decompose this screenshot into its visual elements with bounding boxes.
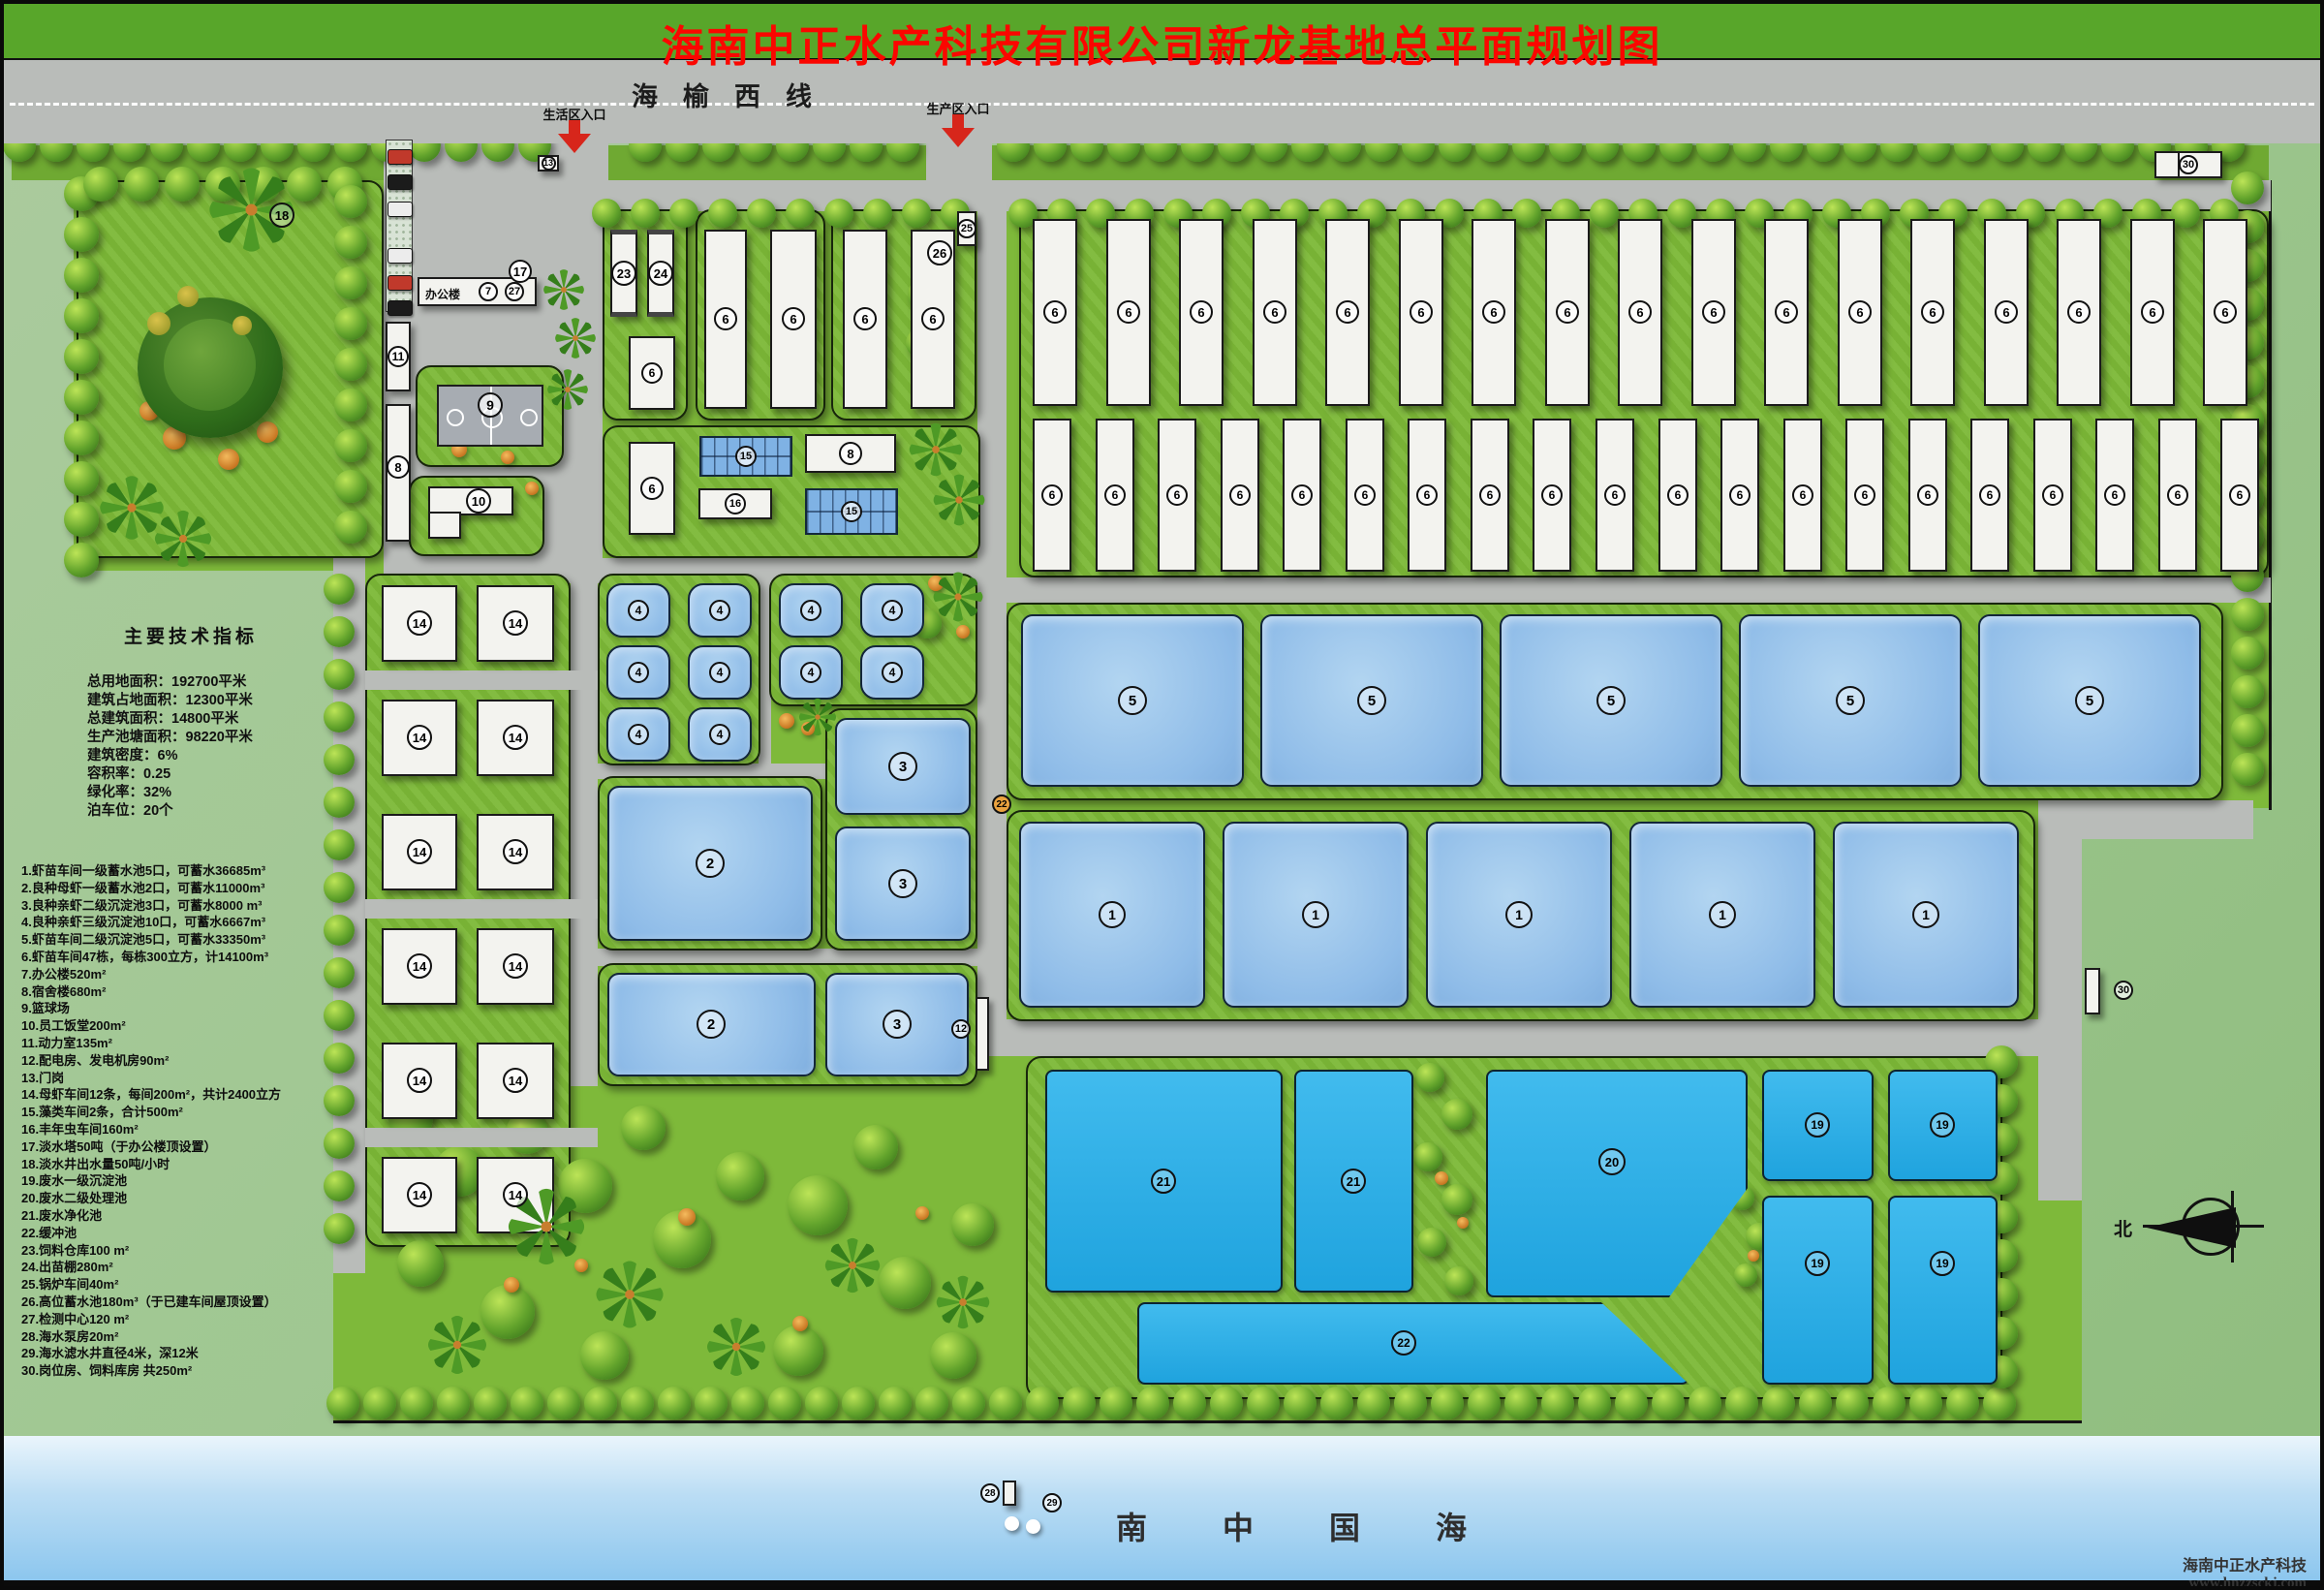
title-banner: 海南中正水产科技有限公司新龙基地总平面规划图 bbox=[4, 4, 2320, 58]
site-zone-mid bbox=[333, 571, 2271, 808]
legend-item: 27.检测中心120 m² bbox=[21, 1311, 281, 1328]
label-n4: 4 bbox=[709, 662, 730, 683]
tree-icon bbox=[1357, 1387, 1390, 1419]
tree-icon bbox=[2231, 171, 2264, 204]
office-building: 办公楼 bbox=[418, 277, 537, 306]
label-n1: 1 bbox=[1099, 901, 1126, 928]
tree-icon bbox=[1415, 1063, 1444, 1092]
tree-icon bbox=[324, 1043, 355, 1074]
label-n6: 6 bbox=[1291, 484, 1313, 506]
workshop-6 bbox=[1283, 419, 1321, 572]
label-n6: 6 bbox=[1854, 484, 1875, 506]
tree-icon bbox=[1985, 1278, 2018, 1311]
label-n4: 4 bbox=[628, 724, 649, 745]
mother-shrimp-workshop-14 bbox=[382, 814, 457, 890]
pond-1 bbox=[1019, 822, 1205, 1008]
tree-icon bbox=[747, 199, 776, 228]
tree-icon bbox=[324, 574, 355, 605]
tree-icon bbox=[334, 389, 367, 421]
tree-icon bbox=[731, 1387, 764, 1419]
legend-item: 4.良种亲虾三级沉淀池10口，可蓄水6667m³ bbox=[21, 914, 281, 931]
tree-icon bbox=[621, 1106, 666, 1150]
tree-icon bbox=[824, 199, 853, 228]
label-n6: 6 bbox=[1190, 300, 1213, 324]
label-n6: 6 bbox=[1041, 484, 1063, 506]
workshop-6 bbox=[1908, 419, 1947, 572]
pond-5 bbox=[1739, 614, 1962, 787]
tree-icon bbox=[930, 1332, 976, 1379]
label-n6: 6 bbox=[1166, 484, 1188, 506]
flower-bush-icon bbox=[235, 390, 261, 416]
road-below-pond1 bbox=[977, 1019, 2082, 1056]
mother-shrimp-workshop-14 bbox=[477, 1157, 554, 1233]
workshop-6 bbox=[2203, 219, 2247, 406]
flower-bush-icon bbox=[717, 260, 732, 275]
workshop-6 bbox=[1158, 419, 1196, 572]
workshop-6 bbox=[1533, 419, 1571, 572]
road-above-pond5 bbox=[1007, 577, 2271, 603]
workshop-6 bbox=[1783, 419, 1822, 572]
pond-4 bbox=[606, 645, 670, 700]
tree-icon bbox=[83, 167, 118, 202]
workshop-6 bbox=[1691, 219, 1736, 406]
tree-icon bbox=[558, 1159, 612, 1213]
mother-shrimp-workshop-14 bbox=[382, 928, 457, 1005]
roadside-green-strip bbox=[12, 145, 2269, 180]
tree-icon bbox=[786, 199, 815, 228]
tree-icon bbox=[1504, 1387, 1537, 1419]
pond-19 bbox=[1762, 1070, 1874, 1181]
label-n6: 6 bbox=[921, 307, 945, 330]
label-n6: 6 bbox=[1792, 484, 1813, 506]
tree-icon bbox=[506, 1111, 548, 1154]
tree-icon bbox=[205, 167, 240, 202]
label-n6: 6 bbox=[1917, 484, 1938, 506]
car-icon bbox=[387, 248, 413, 264]
label-n6: 6 bbox=[782, 307, 805, 330]
tree-icon bbox=[1320, 1387, 1353, 1419]
tree-icon bbox=[124, 167, 159, 202]
road-between-pond4-blocks bbox=[759, 574, 771, 765]
tree-icon bbox=[363, 1387, 396, 1419]
legend-item: 28.海水泵房20m² bbox=[21, 1328, 281, 1346]
tree-icon bbox=[334, 470, 367, 503]
tech-line: 泊车位：20个 bbox=[87, 802, 258, 821]
workshop-6 bbox=[1096, 419, 1134, 572]
label-n2: 2 bbox=[696, 849, 725, 878]
brine-shrimp-16 bbox=[698, 488, 772, 519]
label-n14: 14 bbox=[407, 1182, 432, 1207]
tree-icon bbox=[902, 199, 931, 228]
pond-4 bbox=[860, 583, 924, 638]
mother-shrimp-workshop-14 bbox=[382, 1157, 457, 1233]
car-icon bbox=[387, 202, 413, 217]
workshop-6 bbox=[2057, 219, 2101, 406]
compass-hline bbox=[2143, 1225, 2264, 1228]
tree-icon bbox=[1396, 199, 1425, 228]
label-n5: 5 bbox=[1836, 686, 1865, 715]
tree-icon bbox=[324, 659, 355, 690]
label-n6: 6 bbox=[1604, 484, 1626, 506]
label-n6: 6 bbox=[2141, 300, 2164, 324]
label-n6: 6 bbox=[1482, 300, 1505, 324]
boiler-room-25 bbox=[957, 211, 976, 246]
label-n6: 6 bbox=[1848, 300, 1872, 324]
site-zone-bottom bbox=[333, 808, 2082, 1423]
tree-icon bbox=[2055, 199, 2084, 228]
tree-icon bbox=[2231, 637, 2264, 670]
label-n4: 4 bbox=[628, 662, 649, 683]
pond4-block-b bbox=[769, 574, 977, 706]
tree-icon bbox=[1909, 1387, 1942, 1419]
compass-arrow-icon bbox=[2147, 1207, 2236, 1248]
tree-icon bbox=[951, 1203, 994, 1246]
tree-icon bbox=[64, 298, 99, 333]
tree-icon bbox=[1413, 1142, 1442, 1171]
tree-icon bbox=[989, 1387, 1022, 1419]
tree-icon bbox=[334, 429, 367, 462]
sea-name: 南中国海 bbox=[1116, 1504, 1542, 1548]
tree-icon bbox=[1318, 199, 1348, 228]
workshop-6 bbox=[2033, 419, 2072, 572]
tree-icon bbox=[246, 167, 281, 202]
label-n19: 19 bbox=[1805, 1251, 1830, 1276]
pond-19 bbox=[1762, 1196, 1874, 1385]
palm-tree-icon bbox=[931, 570, 985, 624]
legend-item: 26.高位蓄水池180m³（于已建车间屋顶设置） bbox=[21, 1294, 281, 1311]
label-n6: 6 bbox=[1995, 300, 2018, 324]
tech-indicators-panel: 主要技术指标 总用地面积：192700平米建筑占地面积：12300平米总建筑面积… bbox=[87, 622, 258, 821]
workshop-6 bbox=[1658, 419, 1697, 572]
legend-item: 18.淡水井出水量50吨/小时 bbox=[21, 1156, 281, 1173]
pond-4 bbox=[779, 645, 843, 700]
pond-1 bbox=[1223, 822, 1409, 1008]
tree-icon bbox=[2093, 199, 2123, 228]
tree-icon bbox=[1247, 1387, 1280, 1419]
tree-icon bbox=[592, 199, 621, 228]
pond-1 bbox=[1629, 822, 1815, 1008]
tree-icon bbox=[1745, 199, 1774, 228]
central-vertical-road bbox=[977, 211, 1007, 1056]
algae-pond-15 bbox=[699, 436, 792, 477]
tree-icon bbox=[64, 380, 99, 415]
tree-icon bbox=[952, 1387, 985, 1419]
tree-icon bbox=[1026, 1387, 1059, 1419]
tree-icon bbox=[327, 167, 362, 202]
seedling-shed-24 bbox=[647, 230, 674, 317]
palm-tree-icon bbox=[931, 472, 987, 528]
gatehouse-13 bbox=[538, 155, 559, 171]
palm-tree-icon bbox=[934, 1273, 992, 1331]
legend-item: 8.宿舍楼680m² bbox=[21, 983, 281, 1001]
tree-icon bbox=[1551, 199, 1580, 228]
label-n6: 6 bbox=[1479, 484, 1501, 506]
tree-icon bbox=[1444, 1266, 1473, 1295]
workshop-6 bbox=[1910, 219, 1955, 406]
tree-icon bbox=[1746, 1223, 1773, 1250]
east-vertical-road bbox=[2038, 800, 2082, 1200]
tree-icon bbox=[1985, 1162, 2018, 1195]
tree-icon bbox=[773, 1325, 823, 1376]
label-n1: 1 bbox=[1302, 901, 1329, 928]
tree-icon bbox=[584, 1387, 617, 1419]
tree-icon bbox=[2132, 199, 2161, 228]
label-n22: 22 bbox=[992, 795, 1011, 814]
mother-shrimp-workshop-14 bbox=[477, 928, 554, 1005]
car-icon bbox=[387, 149, 413, 165]
tree-icon bbox=[434, 1146, 484, 1197]
label-n21: 21 bbox=[1151, 1169, 1176, 1194]
block-6-a bbox=[696, 209, 825, 421]
legend-item: 23.饲料仓库100 m² bbox=[21, 1242, 281, 1260]
flower-bush-icon bbox=[708, 238, 728, 258]
tree-icon bbox=[1822, 199, 1851, 228]
tree-icon bbox=[324, 616, 355, 647]
tree-icon bbox=[1431, 1387, 1464, 1419]
label-n6: 6 bbox=[641, 362, 663, 384]
label-n6: 6 bbox=[714, 307, 737, 330]
tree-icon bbox=[2231, 249, 2264, 282]
site-boundary-right bbox=[2269, 180, 2272, 810]
label-n6: 6 bbox=[1775, 300, 1798, 324]
tree-icon bbox=[334, 348, 367, 381]
tree-icon bbox=[64, 176, 99, 211]
legend-item: 30.岗位房、饲料库房 共250m² bbox=[21, 1362, 281, 1380]
palm-tree-icon bbox=[205, 164, 297, 256]
tree-icon bbox=[1125, 199, 1154, 228]
tree-icon bbox=[621, 1387, 654, 1419]
tree-icon bbox=[2171, 199, 2200, 228]
label-n4: 4 bbox=[800, 662, 821, 683]
flower-bush-icon bbox=[792, 1316, 808, 1331]
tree-icon bbox=[324, 915, 355, 946]
bottom-pond-row-block bbox=[598, 963, 977, 1086]
life-entrance-arrowhead bbox=[558, 134, 591, 170]
label-n6: 6 bbox=[2167, 484, 2188, 506]
label-n6: 6 bbox=[1921, 300, 1944, 324]
tree-icon bbox=[326, 1387, 359, 1419]
tree-icon bbox=[1284, 1387, 1317, 1419]
big-tree-icon bbox=[138, 297, 283, 438]
canteen-10 bbox=[428, 486, 513, 515]
flower-bush-icon bbox=[924, 312, 940, 327]
label-n14: 14 bbox=[407, 953, 432, 979]
pond-20 bbox=[1486, 1070, 1748, 1297]
tree-icon bbox=[2231, 675, 2264, 708]
tree-icon bbox=[1689, 1387, 1721, 1419]
stub-road bbox=[365, 899, 598, 919]
tech-line: 生产池塘面积：98220平米 bbox=[87, 729, 258, 747]
tree-icon bbox=[2231, 404, 2264, 437]
tree-icon bbox=[716, 1152, 764, 1200]
flower-bush-icon bbox=[451, 442, 467, 457]
tree-icon bbox=[334, 226, 367, 259]
tree-icon bbox=[708, 199, 737, 228]
tree-icon bbox=[1441, 1099, 1472, 1130]
workshop-6 bbox=[1033, 219, 1077, 406]
workshop-6 bbox=[1472, 219, 1516, 406]
legend-list: 1.虾苗车间一级蓄水池5口，可蓄水36685m³2.良种母虾一级蓄水池2口，可蓄… bbox=[21, 862, 281, 1380]
palm-tree-icon bbox=[907, 421, 965, 479]
palm-tree-icon bbox=[553, 316, 598, 360]
label-n18: 18 bbox=[269, 203, 294, 228]
tree-icon bbox=[853, 1125, 898, 1169]
tree-icon bbox=[1008, 199, 1038, 228]
watermark-company: 海南中正水产科技 bbox=[2183, 1552, 2307, 1575]
tree-icon bbox=[768, 1387, 801, 1419]
workshop-6 bbox=[1984, 219, 2029, 406]
label-n14: 14 bbox=[503, 725, 528, 750]
label-n6: 6 bbox=[1702, 300, 1725, 324]
tree-icon bbox=[1799, 1387, 1832, 1419]
tree-icon bbox=[324, 1000, 355, 1031]
tree-icon bbox=[1836, 1387, 1869, 1419]
tree-icon bbox=[1725, 1387, 1758, 1419]
tree-icon bbox=[2210, 199, 2239, 228]
tree-icon bbox=[941, 199, 970, 228]
tree-icon bbox=[1783, 199, 1813, 228]
pond-4 bbox=[779, 583, 843, 638]
label-n4: 4 bbox=[709, 600, 730, 621]
label-n6: 6 bbox=[1336, 300, 1359, 324]
label-n8: 8 bbox=[387, 455, 410, 479]
tree-icon bbox=[2231, 753, 2264, 786]
site-zone-top bbox=[74, 180, 2271, 571]
workshop-6 bbox=[1221, 419, 1259, 572]
workshop-6 bbox=[1545, 219, 1590, 406]
label-n6: 6 bbox=[1104, 484, 1126, 506]
compass-circle bbox=[2182, 1198, 2240, 1256]
legend-item: 5.虾苗车间二级沉淀池5口，可蓄水33350m³ bbox=[21, 931, 281, 949]
tree-icon bbox=[669, 199, 698, 228]
label-n2: 2 bbox=[697, 1010, 726, 1039]
watermark-website: www.hnzzsckj.com bbox=[2183, 1575, 2307, 1590]
garden-block bbox=[77, 180, 384, 558]
label-n6: 6 bbox=[2214, 300, 2237, 324]
tree-icon bbox=[1615, 1387, 1648, 1419]
label-n14: 14 bbox=[407, 839, 432, 864]
tree-icon bbox=[1512, 199, 1541, 228]
tree-icon bbox=[474, 1387, 507, 1419]
pond-2 bbox=[607, 973, 816, 1076]
tech-line: 绿化率：32% bbox=[87, 784, 258, 802]
tree-icon bbox=[64, 339, 99, 374]
tree-icon bbox=[2231, 520, 2264, 553]
tree-icon bbox=[1873, 1387, 1906, 1419]
label-n6: 6 bbox=[1556, 300, 1579, 324]
tree-icon bbox=[324, 787, 355, 818]
label-n6: 6 bbox=[1667, 484, 1689, 506]
legend-item: 1.虾苗车间一级蓄水池5口，可蓄水36685m³ bbox=[21, 862, 281, 880]
court-block bbox=[416, 365, 564, 467]
label-n30: 30 bbox=[2114, 981, 2133, 1000]
pond-4 bbox=[688, 645, 752, 700]
legend-item: 16.丰年虫车间160m² bbox=[21, 1121, 281, 1138]
watermark: 海南中正水产科技 www.hnzzsckj.com bbox=[2183, 1552, 2307, 1590]
tree-icon bbox=[695, 1387, 728, 1419]
pond1-block bbox=[1007, 810, 2035, 1021]
pond-4 bbox=[606, 707, 670, 762]
legend-item: 22.缓冲池 bbox=[21, 1225, 281, 1242]
tree-icon bbox=[879, 1257, 931, 1309]
label-n4: 4 bbox=[628, 600, 649, 621]
flower-bush-icon bbox=[779, 713, 794, 729]
tree-icon bbox=[547, 1387, 580, 1419]
workshop-6 bbox=[1471, 419, 1509, 572]
tree-icon bbox=[906, 328, 935, 358]
legend-item: 24.出苗棚280m² bbox=[21, 1259, 281, 1276]
tree-icon bbox=[1861, 199, 1890, 228]
tree-icon bbox=[908, 278, 941, 311]
label-n9: 9 bbox=[478, 392, 503, 418]
legend-item: 29.海水滤水井直径4米，深12米 bbox=[21, 1345, 281, 1362]
label-n6: 6 bbox=[1628, 300, 1652, 324]
tree-icon bbox=[2231, 598, 2264, 631]
road-name: 海榆西线 bbox=[632, 76, 837, 113]
label-n11: 11 bbox=[387, 346, 409, 367]
pond-21 bbox=[1294, 1070, 1413, 1293]
legend-item: 2.良种母虾一级蓄水池2口，可蓄水11000m³ bbox=[21, 880, 281, 897]
legend-item: 14.母虾车间12条，每间200m²，共计2400立方 bbox=[21, 1086, 281, 1104]
label-n1: 1 bbox=[1505, 901, 1533, 928]
pond-5 bbox=[1978, 614, 2201, 787]
label-n13: 13 bbox=[542, 156, 556, 171]
legend-item: 17.淡水塔50吨（于办公楼顶设置） bbox=[21, 1138, 281, 1156]
road-between-14-and-ponds bbox=[571, 574, 598, 1086]
dormitory-8b bbox=[805, 434, 896, 473]
label-n3: 3 bbox=[888, 752, 917, 781]
label-n5: 5 bbox=[2075, 686, 2104, 715]
label-n14: 14 bbox=[407, 1068, 432, 1093]
road-center-line bbox=[10, 103, 2314, 106]
workshop-6 bbox=[1179, 219, 1224, 406]
pond-5 bbox=[1260, 614, 1483, 787]
workshop-6 bbox=[1325, 219, 1370, 406]
workshop-6 bbox=[1720, 419, 1759, 572]
label-n8: 8 bbox=[839, 442, 862, 465]
car-icon bbox=[387, 300, 413, 316]
flower-bush-icon bbox=[915, 1206, 929, 1220]
tech-line: 建筑占地面积：12300平米 bbox=[87, 692, 258, 710]
pond-19 bbox=[1888, 1196, 1998, 1385]
label-n12: 12 bbox=[951, 1019, 971, 1039]
label-n21: 21 bbox=[1341, 1169, 1366, 1194]
label-n6: 6 bbox=[2229, 484, 2250, 506]
tree-icon bbox=[334, 185, 367, 218]
tree-icon bbox=[1729, 1185, 1754, 1210]
tree-icon bbox=[2016, 199, 2045, 228]
power-room-11 bbox=[386, 322, 411, 391]
label-n19: 19 bbox=[1930, 1251, 1955, 1276]
workshop-6 bbox=[1408, 419, 1446, 572]
tree-icon bbox=[1417, 1228, 1446, 1257]
pond-21 bbox=[1045, 1070, 1283, 1293]
workshop-6 bbox=[911, 230, 955, 409]
palm-tree-icon bbox=[425, 1313, 489, 1377]
tree-icon bbox=[1706, 199, 1735, 228]
label-n6: 6 bbox=[2104, 484, 2125, 506]
flower-bush-icon bbox=[1457, 1217, 1469, 1229]
tree-icon bbox=[1280, 199, 1309, 228]
legend-item: 7.办公楼520m² bbox=[21, 966, 281, 983]
tree-icon bbox=[511, 1387, 543, 1419]
legend-item: 10.员工饭堂200m² bbox=[21, 1017, 281, 1035]
mother-shrimp-workshop-14 bbox=[382, 1043, 457, 1119]
tree-icon bbox=[1136, 1387, 1169, 1419]
label-n4: 4 bbox=[882, 662, 903, 683]
tree-icon bbox=[1985, 1200, 2018, 1233]
production-entrance-arrowhead bbox=[942, 128, 975, 164]
